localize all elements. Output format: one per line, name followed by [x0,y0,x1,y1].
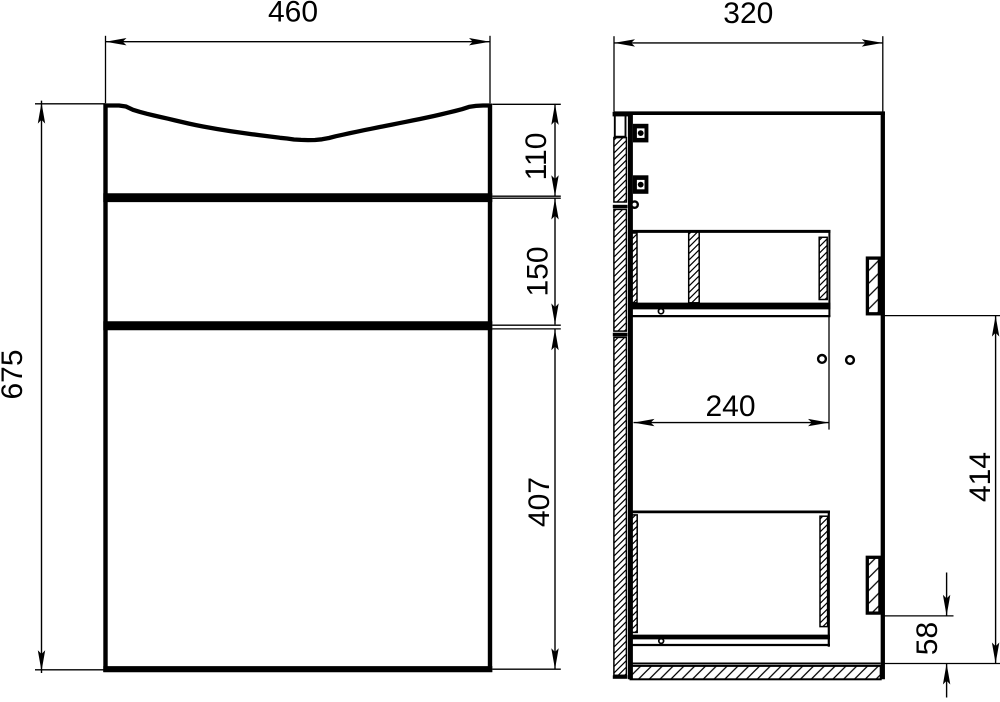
svg-text:240: 240 [705,390,755,423]
svg-text:675: 675 [0,349,29,399]
svg-text:320: 320 [723,0,773,30]
svg-text:414: 414 [964,452,997,502]
svg-text:407: 407 [523,477,556,527]
svg-text:150: 150 [522,246,555,296]
svg-text:110: 110 [520,133,553,181]
svg-text:58: 58 [911,622,944,655]
svg-text:460: 460 [268,0,318,29]
